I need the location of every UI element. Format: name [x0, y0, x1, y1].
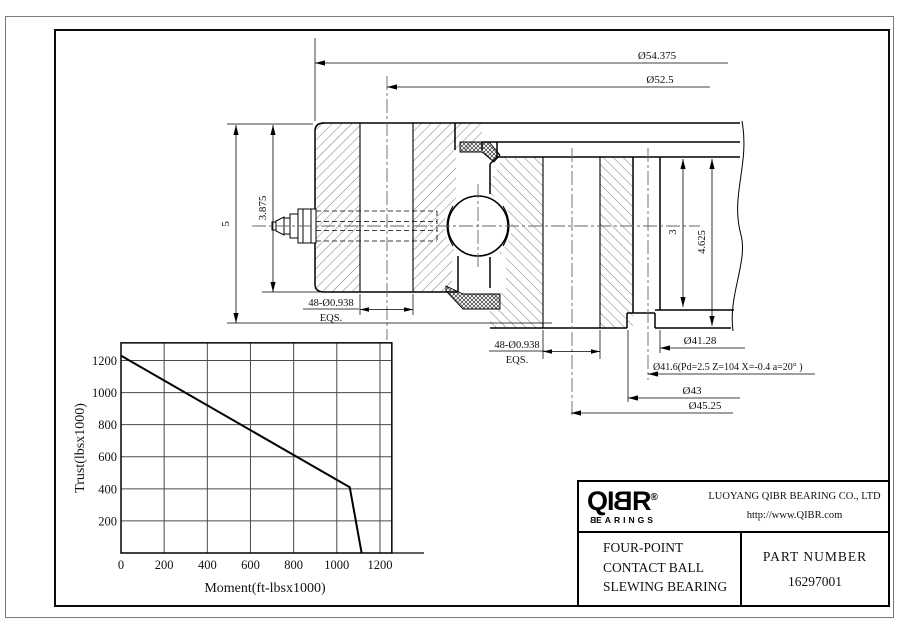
break-line	[732, 121, 744, 331]
y-axis-label: Trust(lbsx1000)	[73, 403, 88, 493]
drawing-sheet: Ø54.375 Ø52.5 5 3.875 48-Ø0.938 EQS. 48-…	[0, 0, 900, 636]
company-name: LUOYANG QIBR BEARING CO., LTD	[705, 488, 884, 507]
part-number-cell: PART NUMBER 16297001	[742, 533, 888, 605]
x-tick-label: 0	[118, 558, 124, 572]
y-tick-label: 600	[98, 450, 117, 464]
company-info: LUOYANG QIBR BEARING CO., LTD http://www…	[705, 488, 888, 526]
dim-label-holes-right-1: 48-Ø0.938	[494, 340, 539, 351]
x-tick-label: 1000	[324, 558, 349, 572]
dim-label-holes-left-1: 48-Ø0.938	[308, 298, 353, 309]
company-url: http://www.QIBR.com	[705, 507, 884, 526]
title-block-header-row: QIBR® BEARINGS LUOYANG QIBR BEARING CO.,…	[579, 482, 888, 533]
dim-label-od: Ø54.375	[638, 50, 677, 62]
qibr-logo-subtext: BEARINGS	[587, 516, 705, 525]
product-line-1: FOUR-POINT	[603, 538, 740, 558]
x-tick-label: 1200	[367, 558, 392, 572]
y-tick-label: 1000	[92, 386, 117, 400]
qibr-logo: QIBR® BEARINGS	[579, 488, 705, 525]
dim-label-gear-face: 3	[668, 229, 679, 234]
dim-label-holes-right-2: EQS.	[506, 355, 528, 366]
title-block-body-row: FOUR-POINT CONTACT BALL SLEWING BEARING …	[579, 533, 888, 605]
dim-label-45-25: Ø45.25	[689, 400, 722, 412]
load-capacity-chart: 0200400600800100012002004006008001000120…	[60, 335, 440, 615]
dim-label-41-28: Ø41.28	[684, 335, 717, 347]
product-description: FOUR-POINT CONTACT BALL SLEWING BEARING	[579, 533, 742, 605]
dim-label-holes-left-2: EQS.	[320, 313, 342, 324]
product-line-3: SLEWING BEARING	[603, 577, 740, 597]
part-number-value: 16297001	[742, 574, 888, 590]
dim-label-height-right: 4.625	[697, 230, 708, 254]
y-tick-label: 800	[98, 418, 117, 432]
y-tick-label: 1200	[92, 354, 117, 368]
series-load-capacity-curve	[121, 356, 362, 553]
x-tick-label: 400	[198, 558, 217, 572]
title-block: QIBR® BEARINGS LUOYANG QIBR BEARING CO.,…	[577, 480, 890, 607]
dim-label-gear: Ø41.6(Pd=2.5 Z=104 X=-0.4 a=20° )	[653, 362, 803, 373]
product-line-2: CONTACT BALL	[603, 558, 740, 578]
x-tick-label: 600	[241, 558, 260, 572]
dim-label-height-total: 5	[220, 221, 232, 227]
dim-label-bolt-circle-left: Ø52.5	[646, 74, 674, 86]
registered-mark-icon: ®	[651, 492, 658, 503]
part-number-label: PART NUMBER	[742, 549, 888, 565]
x-tick-label: 800	[284, 558, 303, 572]
x-tick-label: 200	[155, 558, 174, 572]
y-tick-label: 400	[98, 482, 117, 496]
dim-label-43: Ø43	[683, 385, 702, 397]
plot-box	[121, 343, 392, 553]
y-tick-label: 200	[98, 514, 117, 528]
dim-label-height-left: 3.875	[257, 195, 269, 220]
x-axis-label: Moment(ft-lbsx1000)	[204, 581, 326, 596]
qibr-logo-wordmark: QIBR®	[587, 488, 705, 515]
